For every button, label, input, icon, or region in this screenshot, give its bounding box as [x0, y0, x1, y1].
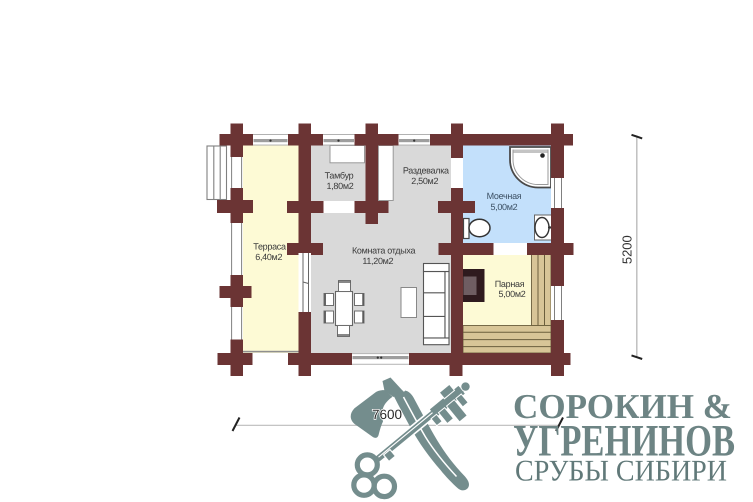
svg-text:Моечная: Моечная — [487, 191, 522, 201]
svg-text:Комната отдыха: Комната отдыха — [352, 246, 416, 256]
svg-text:Раздевалка: Раздевалка — [403, 166, 449, 176]
svg-text:5,00м2: 5,00м2 — [499, 289, 526, 299]
svg-text:5,00м2: 5,00м2 — [490, 202, 517, 212]
svg-text:Парная: Парная — [495, 279, 525, 289]
svg-text:Терраса: Терраса — [253, 242, 286, 252]
svg-text:1,80м2: 1,80м2 — [327, 181, 354, 191]
svg-text:5200: 5200 — [620, 235, 635, 264]
svg-text:2,50м2: 2,50м2 — [411, 176, 438, 186]
svg-text:Тамбур: Тамбур — [325, 171, 354, 181]
svg-text:6,40м2: 6,40м2 — [255, 252, 282, 262]
svg-text:7600: 7600 — [372, 407, 402, 422]
svg-text:СРУБЫ СИБИРИ: СРУБЫ СИБИРИ — [515, 455, 727, 488]
svg-text:11,20м2: 11,20м2 — [362, 256, 393, 266]
